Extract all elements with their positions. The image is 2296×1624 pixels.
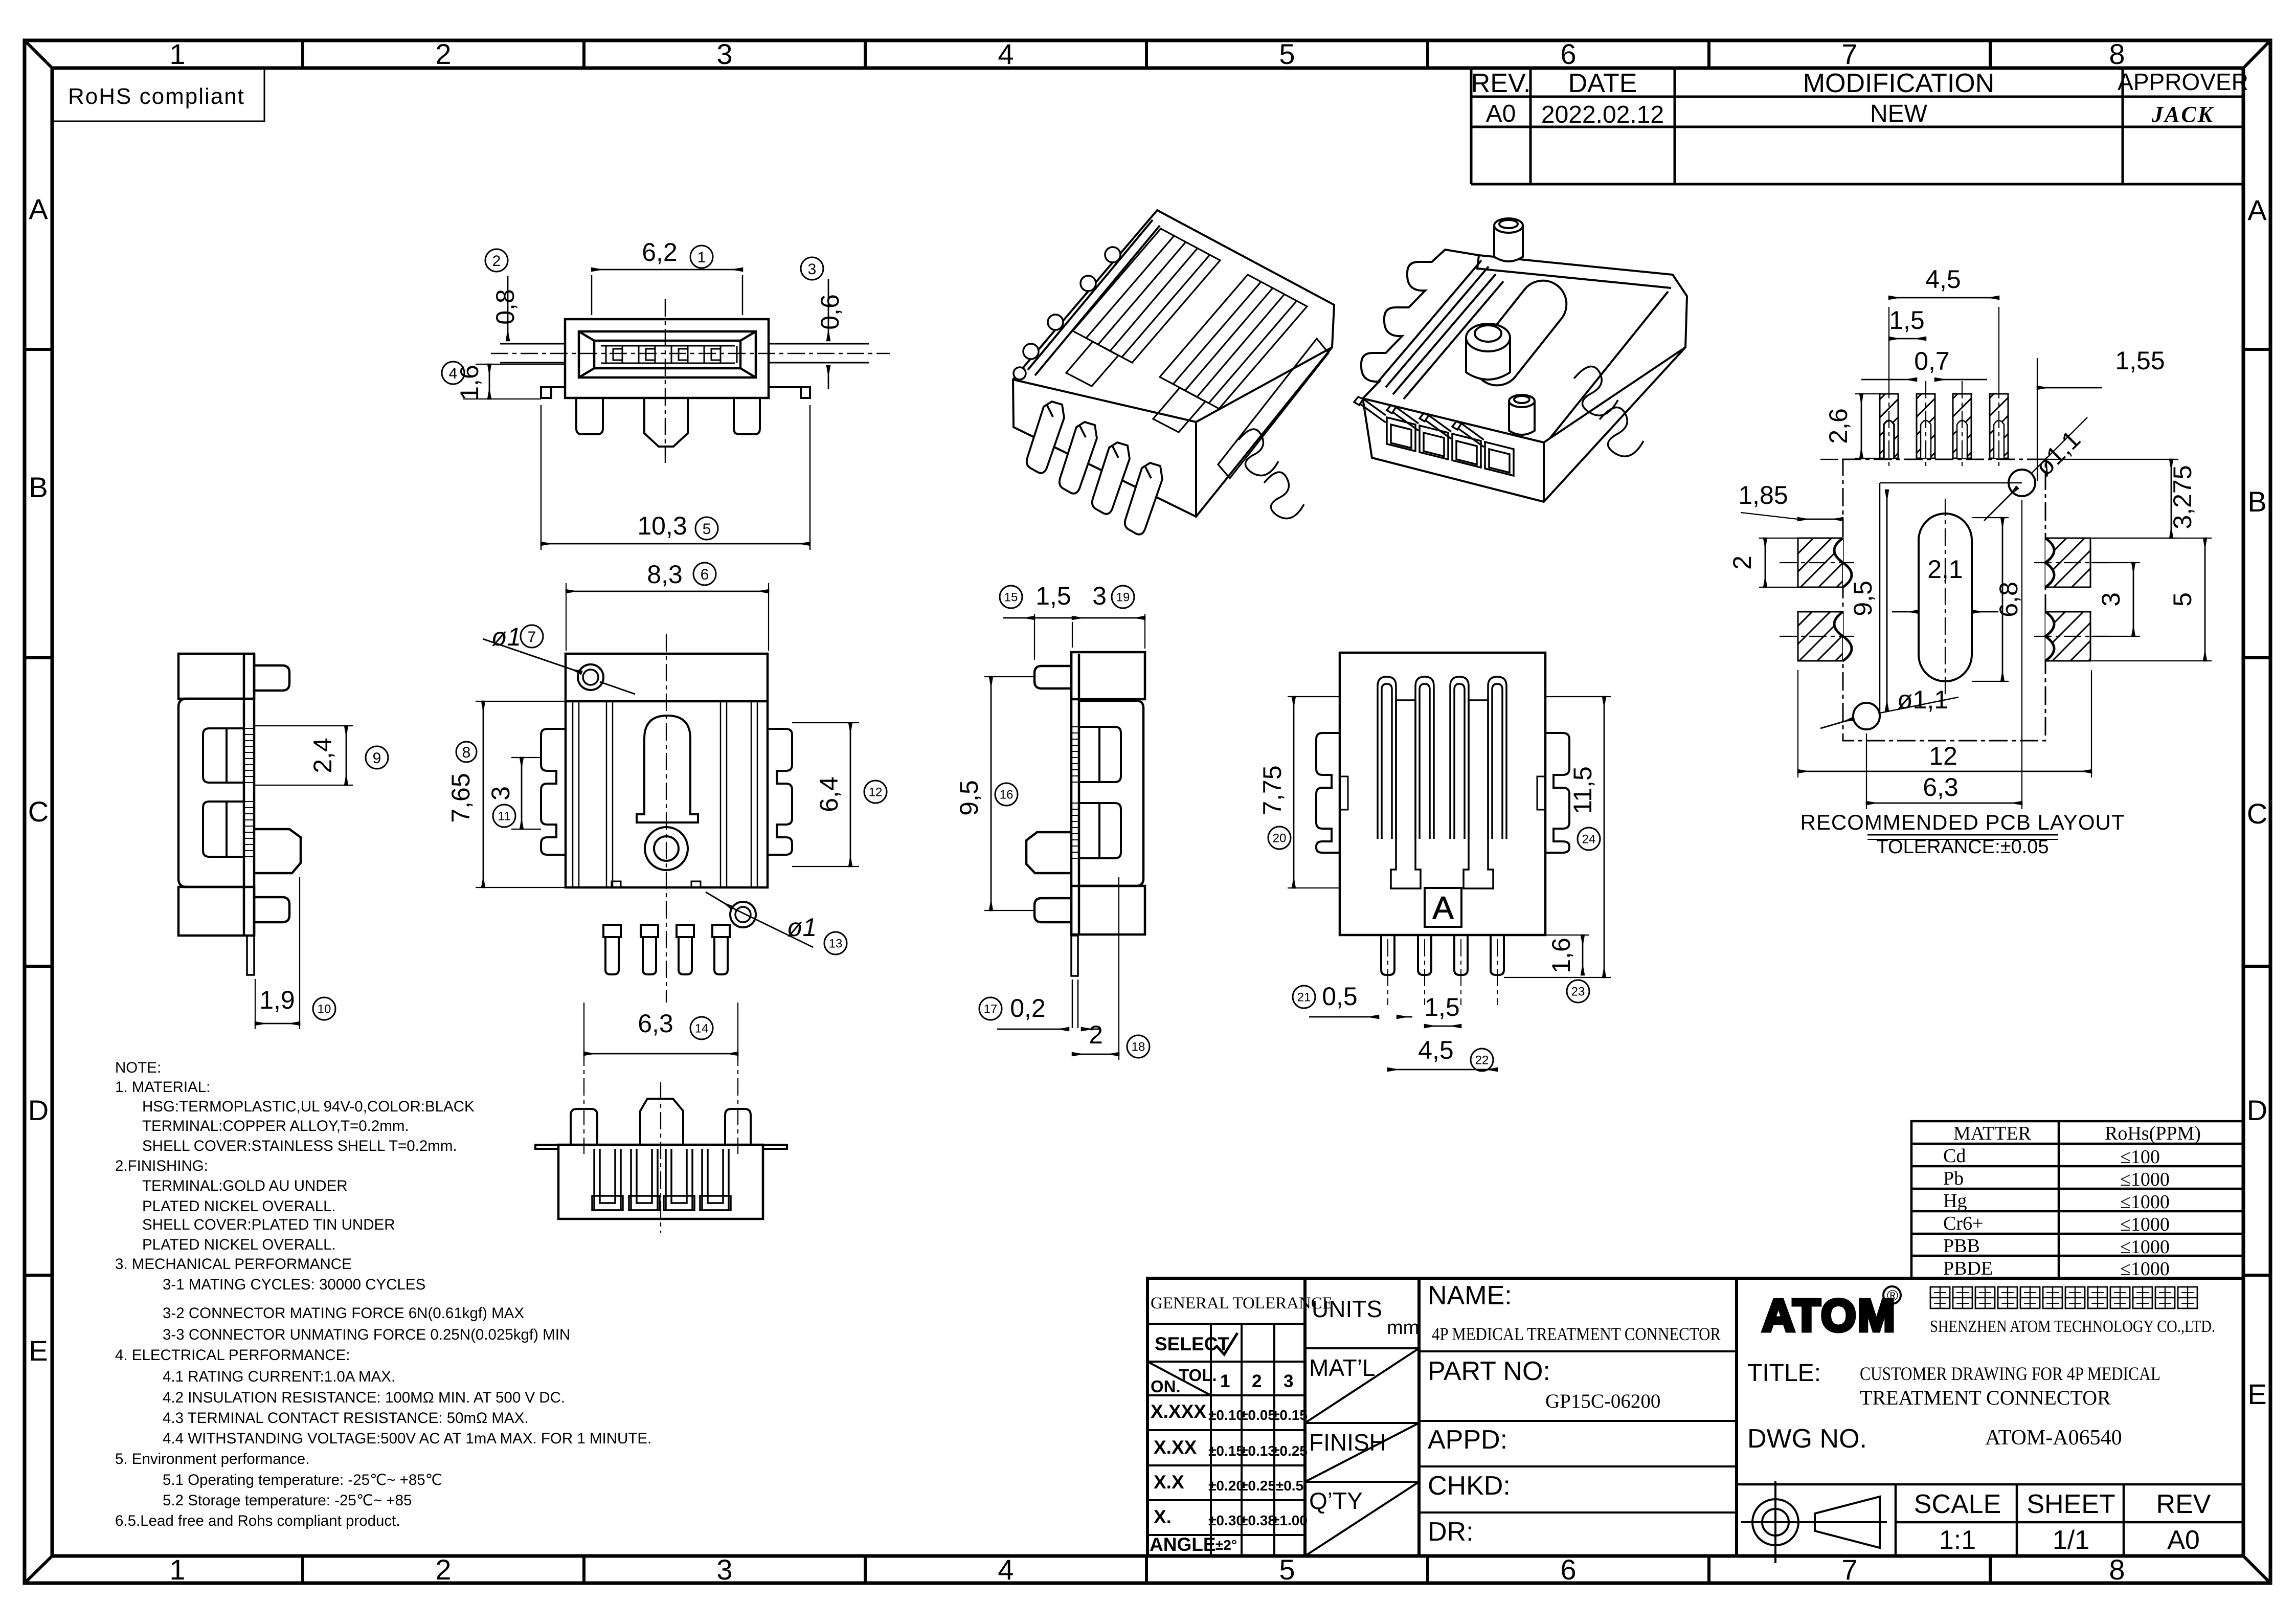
svg-text:3: 3 bbox=[1092, 582, 1107, 610]
svg-text:A: A bbox=[2247, 194, 2267, 226]
svg-text:8: 8 bbox=[2109, 1553, 2125, 1586]
svg-text:3,275: 3,275 bbox=[2168, 465, 2197, 529]
svg-text:A: A bbox=[1432, 891, 1454, 926]
svg-text:Hg: Hg bbox=[1943, 1190, 1967, 1212]
svg-text:C: C bbox=[28, 795, 49, 828]
svg-text:6,3: 6,3 bbox=[638, 1009, 673, 1038]
svg-text:TOLERANCE:±0.05: TOLERANCE:±0.05 bbox=[1877, 836, 2049, 858]
svg-text:6: 6 bbox=[701, 566, 709, 583]
svg-text:ø1: ø1 bbox=[787, 913, 817, 942]
svg-text:5: 5 bbox=[1279, 1553, 1295, 1586]
svg-text:±0.5: ±0.5 bbox=[1276, 1478, 1303, 1494]
svg-text:SHELL COVER:STAINLESS SHELL: SHELL COVER:STAINLESS SHELL T=0.2mm. bbox=[142, 1138, 457, 1154]
svg-text:0,6: 0,6 bbox=[816, 294, 844, 330]
svg-text:UNITS: UNITS bbox=[1312, 1296, 1382, 1322]
svg-text:≤1000: ≤1000 bbox=[2120, 1258, 2170, 1280]
svg-text:4.4 WITHSTANDING VOLTAGE:500: 4.4 WITHSTANDING VOLTAGE:500V AC AT 1mA … bbox=[163, 1430, 651, 1447]
svg-text:11: 11 bbox=[498, 810, 511, 824]
svg-text:±0.13: ±0.13 bbox=[1240, 1443, 1276, 1459]
svg-text:6,4: 6,4 bbox=[815, 776, 843, 812]
svg-text:±0.10: ±0.10 bbox=[1208, 1407, 1244, 1423]
svg-text:2: 2 bbox=[435, 38, 451, 70]
svg-text:1,5: 1,5 bbox=[1036, 582, 1071, 610]
svg-text:±0.25: ±0.25 bbox=[1240, 1478, 1276, 1494]
svg-text:8: 8 bbox=[462, 744, 471, 761]
svg-text:5: 5 bbox=[1279, 38, 1295, 70]
svg-text:±0.25: ±0.25 bbox=[1272, 1443, 1308, 1459]
svg-text:≤1000: ≤1000 bbox=[2120, 1169, 2170, 1190]
svg-text:MATTER: MATTER bbox=[1953, 1123, 2032, 1144]
svg-text:3: 3 bbox=[716, 1553, 732, 1586]
svg-text:17: 17 bbox=[984, 1003, 998, 1016]
svg-text:4.2 INSULATION RESISTANCE:: 4.2 INSULATION RESISTANCE: 100MΩ MIN. AT… bbox=[163, 1389, 565, 1406]
svg-text:18: 18 bbox=[1132, 1040, 1145, 1054]
svg-text:4. ELECTRICAL PERFORMANCE:: 4. ELECTRICAL PERFORMANCE: bbox=[115, 1347, 350, 1364]
svg-text:5. Environment performance.: 5. Environment performance. bbox=[115, 1451, 309, 1467]
svg-text:Cr6+: Cr6+ bbox=[1943, 1213, 1983, 1234]
svg-text:SHELL COVER:PLATED TIN UNDE: SHELL COVER:PLATED TIN UNDER bbox=[142, 1216, 395, 1233]
svg-text:APPD:: APPD: bbox=[1428, 1425, 1507, 1455]
svg-text:14: 14 bbox=[695, 1022, 709, 1036]
svg-text:PLATED NICKEL OVERALL.: PLATED NICKEL OVERALL. bbox=[142, 1198, 336, 1215]
svg-text:23: 23 bbox=[1571, 985, 1585, 999]
svg-text:5: 5 bbox=[2168, 592, 2197, 607]
svg-text:2: 2 bbox=[1089, 1020, 1103, 1049]
svg-text:E: E bbox=[29, 1334, 48, 1367]
svg-text:5.1 Operating temperature:: 5.1 Operating temperature: -25℃~ +85℃ bbox=[163, 1472, 442, 1488]
svg-text:TERMINAL:GOLD AU UNDER: TERMINAL:GOLD AU UNDER bbox=[142, 1177, 348, 1194]
svg-text:24: 24 bbox=[1582, 833, 1596, 847]
svg-text:2022.02.12: 2022.02.12 bbox=[1541, 101, 1664, 128]
svg-text:12: 12 bbox=[1929, 742, 1957, 770]
svg-text:1,5: 1,5 bbox=[1889, 306, 1925, 335]
svg-text:21: 21 bbox=[1297, 991, 1311, 1005]
svg-text:DATE: DATE bbox=[1568, 69, 1637, 98]
svg-text:PART NO:: PART NO: bbox=[1428, 1356, 1550, 1386]
svg-text:3: 3 bbox=[808, 261, 817, 278]
svg-text:SELECT: SELECT bbox=[1155, 1333, 1229, 1354]
svg-text:±2°: ±2° bbox=[1215, 1537, 1237, 1553]
svg-text:3-3 CONNECTOR UNMATING FORC: 3-3 CONNECTOR UNMATING FORCE 0.25N(0.025… bbox=[163, 1326, 570, 1343]
svg-text:≤100: ≤100 bbox=[2120, 1146, 2160, 1168]
svg-text:2: 2 bbox=[1728, 555, 1757, 570]
svg-text:±1.00: ±1.00 bbox=[1272, 1512, 1308, 1528]
svg-text:1:1: 1:1 bbox=[1939, 1525, 1976, 1555]
svg-text:ATOM: ATOM bbox=[1762, 1290, 1897, 1341]
svg-text:2: 2 bbox=[435, 1553, 451, 1586]
svg-text:2: 2 bbox=[1252, 1371, 1262, 1391]
svg-text:10,3: 10,3 bbox=[637, 511, 687, 540]
svg-text:≤1000: ≤1000 bbox=[2120, 1191, 2170, 1213]
svg-text:7: 7 bbox=[1841, 38, 1857, 70]
svg-text:≤1000: ≤1000 bbox=[2120, 1214, 2170, 1235]
svg-text:±0.05: ±0.05 bbox=[1240, 1407, 1276, 1423]
svg-text:NEW: NEW bbox=[1870, 100, 1928, 127]
svg-text:X.X: X.X bbox=[1154, 1472, 1184, 1493]
svg-text:SHENZHEN ATOM TECHNOLOGY CO.,L: SHENZHEN ATOM TECHNOLOGY CO.,LTD. bbox=[1930, 1317, 2215, 1336]
svg-text:1: 1 bbox=[169, 38, 185, 70]
svg-text:TITLE:: TITLE: bbox=[1747, 1360, 1821, 1387]
svg-text:6: 6 bbox=[1560, 1553, 1576, 1586]
svg-text:8,3: 8,3 bbox=[647, 560, 683, 589]
svg-text:20: 20 bbox=[1273, 832, 1287, 846]
svg-text:CHKD:: CHKD: bbox=[1428, 1471, 1511, 1501]
svg-text:0,5: 0,5 bbox=[1322, 982, 1358, 1011]
svg-text:0,8: 0,8 bbox=[491, 289, 520, 325]
svg-text:HSG:TERMOPLASTIC,UL 94V-0,COL: HSG:TERMOPLASTIC,UL 94V-0,COLOR:BLACK bbox=[142, 1098, 475, 1115]
svg-text:CUSTOMER DRAWING FOR 4P MEDICA: CUSTOMER DRAWING FOR 4P MEDICAL bbox=[1860, 1364, 2160, 1385]
svg-text:TOL.: TOL. bbox=[1179, 1366, 1217, 1385]
svg-text:B: B bbox=[2247, 485, 2266, 518]
svg-text:PBB: PBB bbox=[1943, 1235, 1980, 1257]
svg-text:4.1 RATING CURRENT:1.0A MAX: 4.1 RATING CURRENT:1.0A MAX. bbox=[163, 1368, 395, 1385]
svg-text:A0: A0 bbox=[2167, 1525, 2200, 1555]
svg-text:ON.: ON. bbox=[1151, 1377, 1181, 1396]
svg-text:3-2 CONNECTOR MATING FORCE: 3-2 CONNECTOR MATING FORCE 6N(0.61kgf) M… bbox=[163, 1305, 524, 1322]
svg-text:NAME:: NAME: bbox=[1428, 1281, 1512, 1310]
svg-text:2: 2 bbox=[492, 253, 501, 270]
svg-text:6,2: 6,2 bbox=[642, 238, 678, 266]
svg-text:2,4: 2,4 bbox=[308, 738, 337, 773]
svg-text:3: 3 bbox=[2097, 592, 2125, 607]
svg-text:2,1: 2,1 bbox=[1927, 555, 1963, 584]
svg-text:MODIFICATION: MODIFICATION bbox=[1803, 69, 1995, 98]
svg-text:1: 1 bbox=[1220, 1371, 1230, 1391]
svg-text:TREATMENT CONNECTOR: TREATMENT CONNECTOR bbox=[1860, 1386, 2111, 1409]
svg-text:10: 10 bbox=[318, 1003, 331, 1016]
svg-text:3: 3 bbox=[716, 38, 732, 70]
svg-text:GP15C-06200: GP15C-06200 bbox=[1545, 1390, 1660, 1412]
svg-text:2,6: 2,6 bbox=[1824, 408, 1853, 444]
svg-text:≤1000: ≤1000 bbox=[2120, 1236, 2170, 1258]
svg-text:5: 5 bbox=[703, 521, 711, 538]
svg-text:REV.: REV. bbox=[1471, 69, 1531, 98]
svg-text:MAT’L: MAT’L bbox=[1309, 1354, 1376, 1381]
svg-text:9,5: 9,5 bbox=[955, 780, 983, 816]
svg-text:C: C bbox=[2247, 797, 2267, 830]
svg-text:4P MEDICAL TREATMENT CONNECTOR: 4P MEDICAL TREATMENT CONNECTOR bbox=[1432, 1324, 1721, 1344]
svg-text:1,85: 1,85 bbox=[1738, 481, 1788, 509]
svg-text:NOTE:: NOTE: bbox=[115, 1059, 161, 1076]
svg-text:12: 12 bbox=[869, 786, 883, 799]
svg-text:9,5: 9,5 bbox=[1849, 581, 1877, 616]
svg-text:ATOM-A06540: ATOM-A06540 bbox=[1985, 1426, 2122, 1450]
svg-text:Pb: Pb bbox=[1943, 1168, 1964, 1189]
svg-text:13: 13 bbox=[829, 937, 843, 951]
svg-text:19: 19 bbox=[1116, 591, 1130, 605]
svg-text:9: 9 bbox=[373, 750, 381, 767]
svg-text:SHEET: SHEET bbox=[2027, 1489, 2115, 1519]
svg-text:RoHs(PPM): RoHs(PPM) bbox=[2105, 1123, 2201, 1144]
svg-text:8: 8 bbox=[2109, 38, 2125, 70]
svg-text:±0.15: ±0.15 bbox=[1208, 1443, 1244, 1459]
svg-text:RECOMMENDED PCB LAYOUT: RECOMMENDED PCB LAYOUT bbox=[1800, 810, 2125, 834]
svg-text:15: 15 bbox=[1004, 591, 1018, 605]
svg-text:2.FINISHING:: 2.FINISHING: bbox=[115, 1158, 208, 1174]
svg-text:A: A bbox=[29, 193, 48, 225]
svg-text:Cd: Cd bbox=[1943, 1145, 1966, 1167]
svg-text:7: 7 bbox=[1841, 1553, 1857, 1586]
svg-text:B: B bbox=[29, 471, 48, 503]
svg-text:3: 3 bbox=[1284, 1371, 1293, 1391]
svg-text:FINISH: FINISH bbox=[1309, 1429, 1386, 1456]
svg-text:6,8: 6,8 bbox=[1994, 582, 2023, 617]
svg-text:1,6: 1,6 bbox=[1547, 938, 1575, 973]
svg-text:7: 7 bbox=[528, 629, 536, 646]
svg-text:ANGLE: ANGLE bbox=[1150, 1534, 1216, 1555]
svg-text:®: ® bbox=[1887, 1287, 1898, 1304]
svg-text:±0.15: ±0.15 bbox=[1272, 1407, 1308, 1423]
svg-text:1. MATERIAL:: 1. MATERIAL: bbox=[115, 1079, 210, 1096]
svg-text:6: 6 bbox=[1560, 38, 1576, 70]
svg-text:4: 4 bbox=[998, 38, 1014, 70]
svg-text:ø1,1: ø1,1 bbox=[1897, 685, 1948, 714]
svg-text:DWG NO.: DWG NO. bbox=[1747, 1424, 1867, 1454]
svg-text:SCALE: SCALE bbox=[1914, 1489, 2001, 1519]
svg-text:D: D bbox=[2247, 1094, 2267, 1126]
svg-text:7,65: 7,65 bbox=[446, 773, 475, 822]
svg-text:3: 3 bbox=[486, 786, 515, 800]
svg-text:1,5: 1,5 bbox=[1424, 993, 1460, 1021]
svg-text:±0.30: ±0.30 bbox=[1208, 1512, 1244, 1528]
svg-text:Q’TY: Q’TY bbox=[1309, 1487, 1363, 1514]
svg-text:RoHS compliant: RoHS compliant bbox=[68, 84, 245, 109]
svg-text:3-1 MATING CYCLES: 30000 C: 3-1 MATING CYCLES: 30000 CYCLES bbox=[163, 1276, 425, 1293]
svg-text:mm: mm bbox=[1387, 1317, 1419, 1339]
svg-text:16: 16 bbox=[1000, 788, 1014, 802]
svg-text:11,5: 11,5 bbox=[1568, 766, 1597, 814]
svg-text:1,55: 1,55 bbox=[2115, 346, 2165, 375]
svg-text:6.5.Lead free and Rohs com: 6.5.Lead free and Rohs compliant product… bbox=[115, 1512, 400, 1529]
svg-text:GENERAL TOLERANCE: GENERAL TOLERANCE bbox=[1151, 1294, 1333, 1312]
svg-text:TERMINAL:COPPER ALLOY,T=0.2mm: TERMINAL:COPPER ALLOY,T=0.2mm. bbox=[142, 1118, 409, 1134]
svg-text:1,6: 1,6 bbox=[455, 365, 484, 401]
svg-text:4,5: 4,5 bbox=[1418, 1036, 1454, 1064]
svg-text:REV: REV bbox=[2156, 1489, 2211, 1519]
svg-text:PBDE: PBDE bbox=[1943, 1258, 1993, 1279]
svg-text:E: E bbox=[2247, 1378, 2266, 1410]
svg-text:1,9: 1,9 bbox=[259, 986, 295, 1014]
svg-text:5.2 Storage temperature: -2: 5.2 Storage temperature: -25℃~ +85 bbox=[163, 1492, 412, 1509]
svg-text:6,3: 6,3 bbox=[1923, 773, 1959, 802]
svg-text:PLATED NICKEL OVERALL.: PLATED NICKEL OVERALL. bbox=[142, 1236, 336, 1253]
svg-text:0,7: 0,7 bbox=[1914, 347, 1950, 375]
svg-text:APPROVER: APPROVER bbox=[2118, 69, 2248, 95]
svg-text:4: 4 bbox=[998, 1553, 1014, 1586]
svg-text:X.: X. bbox=[1154, 1506, 1172, 1527]
svg-text:X.XXX: X.XXX bbox=[1151, 1401, 1206, 1422]
svg-text:4,5: 4,5 bbox=[1925, 265, 1961, 294]
svg-text:±0.20: ±0.20 bbox=[1208, 1478, 1244, 1494]
svg-text:1: 1 bbox=[169, 1553, 185, 1586]
svg-text:±0.38: ±0.38 bbox=[1240, 1512, 1276, 1528]
svg-text:DR:: DR: bbox=[1428, 1517, 1474, 1547]
svg-text:1: 1 bbox=[697, 249, 706, 266]
svg-text:0,2: 0,2 bbox=[1010, 994, 1046, 1022]
svg-text:7,75: 7,75 bbox=[1258, 765, 1287, 815]
svg-text:4.3 TERMINAL CONTACT RESIST: 4.3 TERMINAL CONTACT RESISTANCE: 50mΩ MA… bbox=[163, 1410, 528, 1427]
svg-text:D: D bbox=[28, 1094, 49, 1126]
svg-text:22: 22 bbox=[1475, 1054, 1489, 1067]
svg-text:1/1: 1/1 bbox=[2053, 1525, 2089, 1555]
svg-text:JACK: JACK bbox=[2151, 102, 2214, 127]
svg-text:A0: A0 bbox=[1486, 100, 1516, 127]
svg-text:3. MECHANICAL PERFORMANCE: 3. MECHANICAL PERFORMANCE bbox=[115, 1256, 352, 1273]
svg-text:X.XX: X.XX bbox=[1154, 1437, 1197, 1458]
